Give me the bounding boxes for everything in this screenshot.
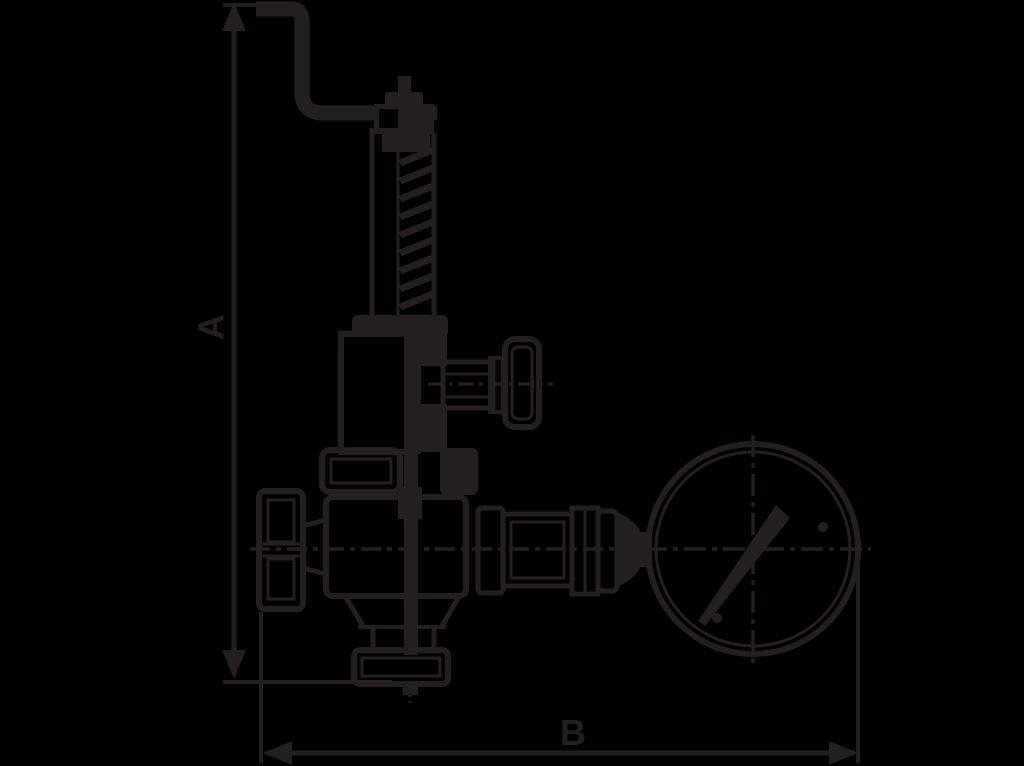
taper-right bbox=[441, 596, 459, 628]
valve-drawing: A B bbox=[0, 0, 1024, 766]
spring-housing bbox=[352, 128, 448, 337]
dimension-b: B bbox=[261, 549, 858, 765]
gauge-screw-dot-left bbox=[712, 613, 722, 623]
arrow-down-icon bbox=[222, 650, 246, 679]
arrow-left-icon bbox=[263, 741, 292, 765]
outlet-fittings bbox=[478, 508, 652, 594]
dimension-b-label: B bbox=[560, 712, 586, 753]
bottom-flange-inner bbox=[362, 658, 440, 676]
bonnet-shell bbox=[341, 334, 407, 452]
union-right-block bbox=[440, 448, 478, 495]
pressure-gauge bbox=[645, 435, 871, 664]
cap-slot bbox=[379, 109, 398, 128]
body-box bbox=[326, 497, 466, 596]
union-ring-3 bbox=[598, 511, 617, 591]
dimension-a-label: A bbox=[191, 314, 232, 340]
bottom-flange-outer bbox=[354, 650, 448, 684]
technical-drawing-canvas: A B bbox=[0, 0, 1024, 766]
gauge-screw-dot-right bbox=[818, 522, 828, 532]
cap-locknut bbox=[382, 132, 430, 152]
bonnet-right-lower bbox=[421, 404, 447, 452]
inlet-cap-inner-top bbox=[268, 500, 294, 542]
dimension-a: A bbox=[191, 2, 392, 682]
spring-coil bbox=[400, 150, 433, 307]
arrow-right-icon bbox=[829, 741, 858, 765]
union-outer bbox=[322, 450, 400, 492]
union-inner bbox=[331, 459, 391, 483]
adjusting-cap bbox=[374, 76, 434, 152]
center-stem bbox=[404, 420, 418, 655]
inlet-cap-inner-bottom bbox=[268, 559, 294, 599]
gauge-needle bbox=[698, 505, 790, 626]
bonnet bbox=[341, 334, 447, 454]
taper-left bbox=[345, 596, 364, 628]
